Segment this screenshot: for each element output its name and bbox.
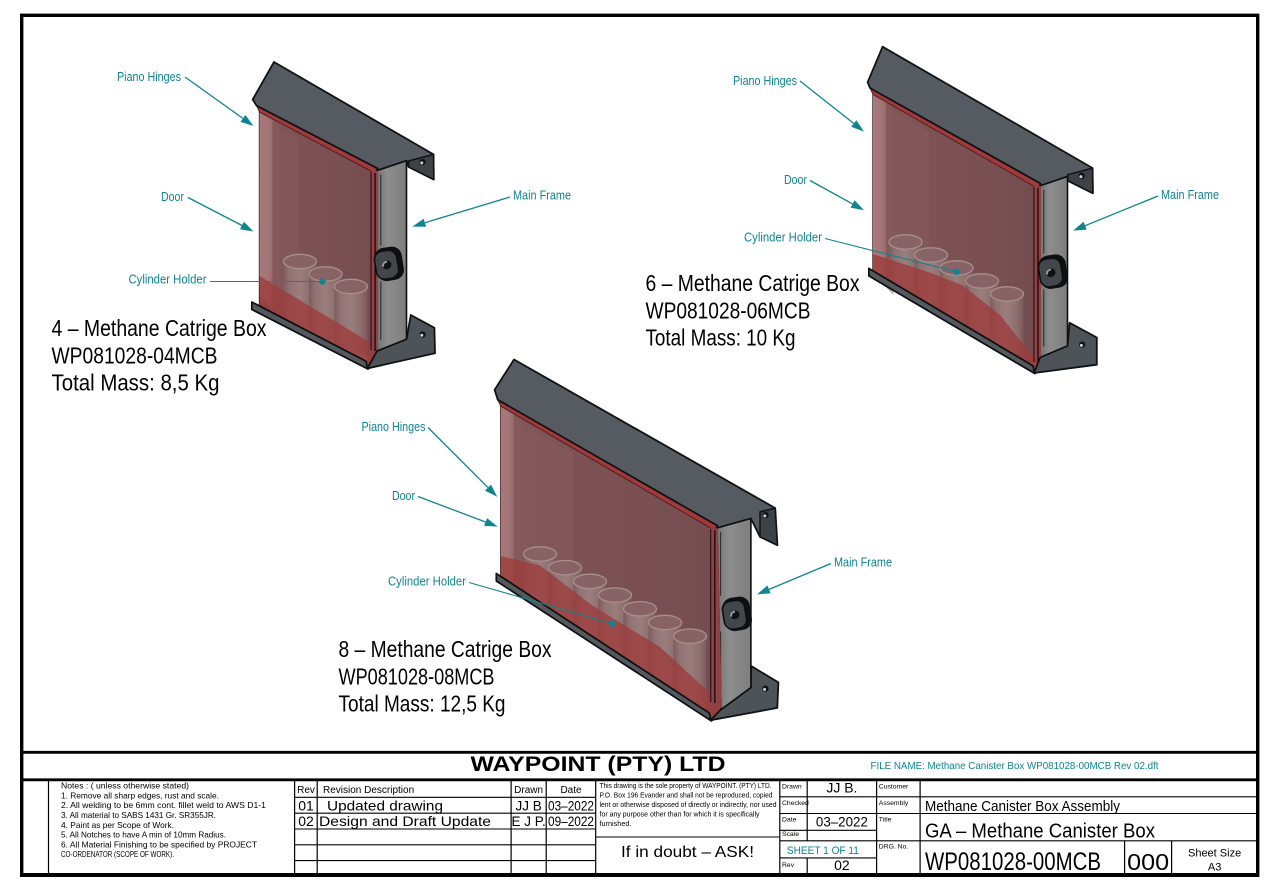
svg-text:Rev: Rev xyxy=(782,862,795,869)
svg-text:02: 02 xyxy=(298,813,314,829)
svg-text:Methane Canister Box Assembly: Methane Canister Box Assembly xyxy=(925,798,1120,815)
svg-text:DRG. No.: DRG. No. xyxy=(879,843,909,850)
svg-text:lent or otherwise disposed of: lent or otherwise disposed of directly o… xyxy=(600,800,777,809)
svg-text:Assembly: Assembly xyxy=(879,800,909,807)
svg-text:Door: Door xyxy=(161,189,185,204)
svg-text:000: 000 xyxy=(1127,849,1169,875)
svg-text:WP081028-04MCB: WP081028-04MCB xyxy=(52,342,218,368)
svg-text:Piano Hinges: Piano Hinges xyxy=(117,69,181,84)
svg-text:Drawn: Drawn xyxy=(514,785,543,796)
svg-text:Cylinder Holder: Cylinder Holder xyxy=(744,230,823,245)
svg-text:4. Paint as per Scope of Work.: 4. Paint as per Scope of Work. xyxy=(61,821,174,830)
svg-text:Total Mass: 12,5 Kg: Total Mass: 12,5 Kg xyxy=(339,691,506,717)
svg-text:Revision Description: Revision Description xyxy=(323,785,414,796)
svg-text:Door: Door xyxy=(392,488,416,503)
svg-text:Piano Hinges: Piano Hinges xyxy=(362,419,426,434)
svg-text:Main Frame: Main Frame xyxy=(513,188,571,203)
svg-text:GA – Methane Canister Box: GA – Methane Canister Box xyxy=(925,821,1155,843)
svg-text:furnished.: furnished. xyxy=(600,819,632,828)
svg-text:Design and Draft Update: Design and Draft Update xyxy=(319,813,491,829)
svg-text:8 – Methane Catrige Box: 8 – Methane Catrige Box xyxy=(339,636,552,662)
svg-text:01: 01 xyxy=(298,797,314,813)
svg-text:Cylinder Holder: Cylinder Holder xyxy=(129,272,208,287)
svg-text:3. All material to SABS 1431 G: 3. All material to SABS 1431 Gr. SR355JR… xyxy=(61,811,216,820)
svg-text:JJ B.: JJ B. xyxy=(826,779,857,795)
svg-text:5. All Notches to have A min o: 5. All Notches to have A min of 10mm Rad… xyxy=(61,831,226,840)
svg-text:Rev: Rev xyxy=(297,785,315,796)
svg-text:1. Remove all sharp edges, rus: 1. Remove all sharp edges, rust and scal… xyxy=(61,791,219,800)
svg-text:Piano Hinges: Piano Hinges xyxy=(733,73,797,88)
svg-text:Total Mass: 8,5 Kg: Total Mass: 8,5 Kg xyxy=(52,370,220,396)
svg-text:WP081028-08MCB: WP081028-08MCB xyxy=(339,663,495,689)
svg-text:4 – Methane Catrige Box: 4 – Methane Catrige Box xyxy=(52,315,267,341)
svg-text:Customer: Customer xyxy=(879,783,909,790)
svg-text:WP081028-00MCB: WP081028-00MCB xyxy=(925,848,1101,876)
svg-text:Cylinder Holder: Cylinder Holder xyxy=(388,574,467,589)
svg-text:03–2022: 03–2022 xyxy=(816,813,868,829)
svg-text:Drawn: Drawn xyxy=(782,783,802,790)
svg-text:Notes : ( unless otherwise sta: Notes : ( unless otherwise stated) xyxy=(61,782,189,791)
svg-text:for any purpose other than for: for any purpose other than for which it … xyxy=(600,810,760,819)
svg-text:Main Frame: Main Frame xyxy=(834,555,892,570)
svg-text:A3: A3 xyxy=(1208,861,1221,873)
svg-text:Title: Title xyxy=(879,817,892,824)
svg-text:WP081028-06MCB: WP081028-06MCB xyxy=(646,297,811,323)
svg-text:6. All Material Finishing to b: 6. All Material Finishing to be specifie… xyxy=(61,840,257,849)
svg-text:FILE NAME: Methane Canister Bo: FILE NAME: Methane Canister Box WP081028… xyxy=(871,760,1159,772)
svg-text:WAYPOINT (PTY) LTD: WAYPOINT (PTY) LTD xyxy=(471,752,726,776)
svg-text:This drawing is the sole prope: This drawing is the sole property of WAY… xyxy=(600,781,772,790)
svg-text:P.O. Box 196 Evander and shall: P.O. Box 196 Evander and shall not be re… xyxy=(600,790,773,799)
svg-text:02: 02 xyxy=(834,857,850,873)
svg-text:2. All welding to be 6mm cont.: 2. All welding to be 6mm cont. fillet we… xyxy=(61,801,266,810)
svg-text:Sheet Size: Sheet Size xyxy=(1188,847,1241,859)
svg-text:Total Mass: 10 Kg: Total Mass: 10 Kg xyxy=(646,325,796,351)
svg-text:If in doubt – ASK!: If in doubt – ASK! xyxy=(621,844,754,861)
svg-text:09–2022: 09–2022 xyxy=(548,814,594,829)
svg-text:03–2022: 03–2022 xyxy=(548,798,594,813)
svg-text:Date: Date xyxy=(560,785,582,796)
svg-text:Checked: Checked xyxy=(782,800,809,807)
svg-text:6 – Methane Catrige Box: 6 – Methane Catrige Box xyxy=(646,270,860,296)
svg-text:JJ B: JJ B xyxy=(515,798,541,813)
svg-text:Main Frame: Main Frame xyxy=(1161,187,1219,202)
svg-text:Date: Date xyxy=(782,817,797,824)
svg-text:SHEET 1 OF 11: SHEET 1 OF 11 xyxy=(787,845,859,857)
svg-text:Scale: Scale xyxy=(782,831,799,838)
svg-text:CO-ORDENATOR (SCOPE OF WORK).: CO-ORDENATOR (SCOPE OF WORK). xyxy=(61,850,174,859)
svg-text:Door: Door xyxy=(784,172,808,187)
svg-text:Updated drawing: Updated drawing xyxy=(327,797,443,813)
svg-text:E J P.: E J P. xyxy=(511,814,545,829)
